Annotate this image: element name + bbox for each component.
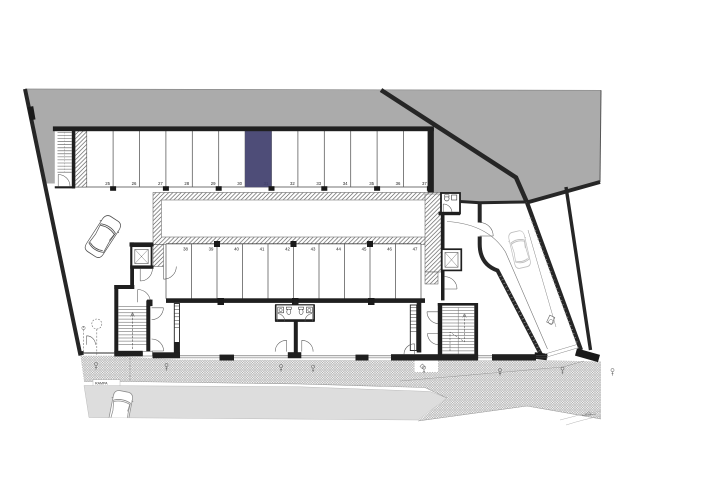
svg-text:47: 47 (413, 247, 418, 252)
svg-text:46: 46 (387, 247, 392, 252)
svg-text:RAMPA: RAMPA (95, 381, 108, 385)
svg-text:35: 35 (369, 181, 374, 186)
svg-text:41: 41 (260, 247, 265, 252)
svg-text:38: 38 (183, 247, 188, 252)
svg-text:43: 43 (311, 247, 316, 252)
svg-text:31: 31 (264, 181, 269, 186)
svg-text:30: 30 (237, 181, 242, 186)
svg-text:42: 42 (285, 247, 290, 252)
svg-text:28: 28 (184, 181, 189, 186)
svg-text:40: 40 (234, 247, 239, 252)
svg-text:34: 34 (343, 181, 348, 186)
svg-text:45: 45 (362, 247, 367, 252)
svg-text:26: 26 (132, 181, 137, 186)
svg-text:33: 33 (316, 181, 321, 186)
svg-text:37: 37 (422, 181, 427, 186)
svg-text:36: 36 (396, 181, 401, 186)
svg-text:39: 39 (209, 247, 214, 252)
svg-text:32: 32 (290, 181, 295, 186)
svg-text:25: 25 (105, 181, 110, 186)
svg-text:27: 27 (158, 181, 163, 186)
svg-text:29: 29 (211, 181, 216, 186)
svg-text:44: 44 (336, 247, 341, 252)
